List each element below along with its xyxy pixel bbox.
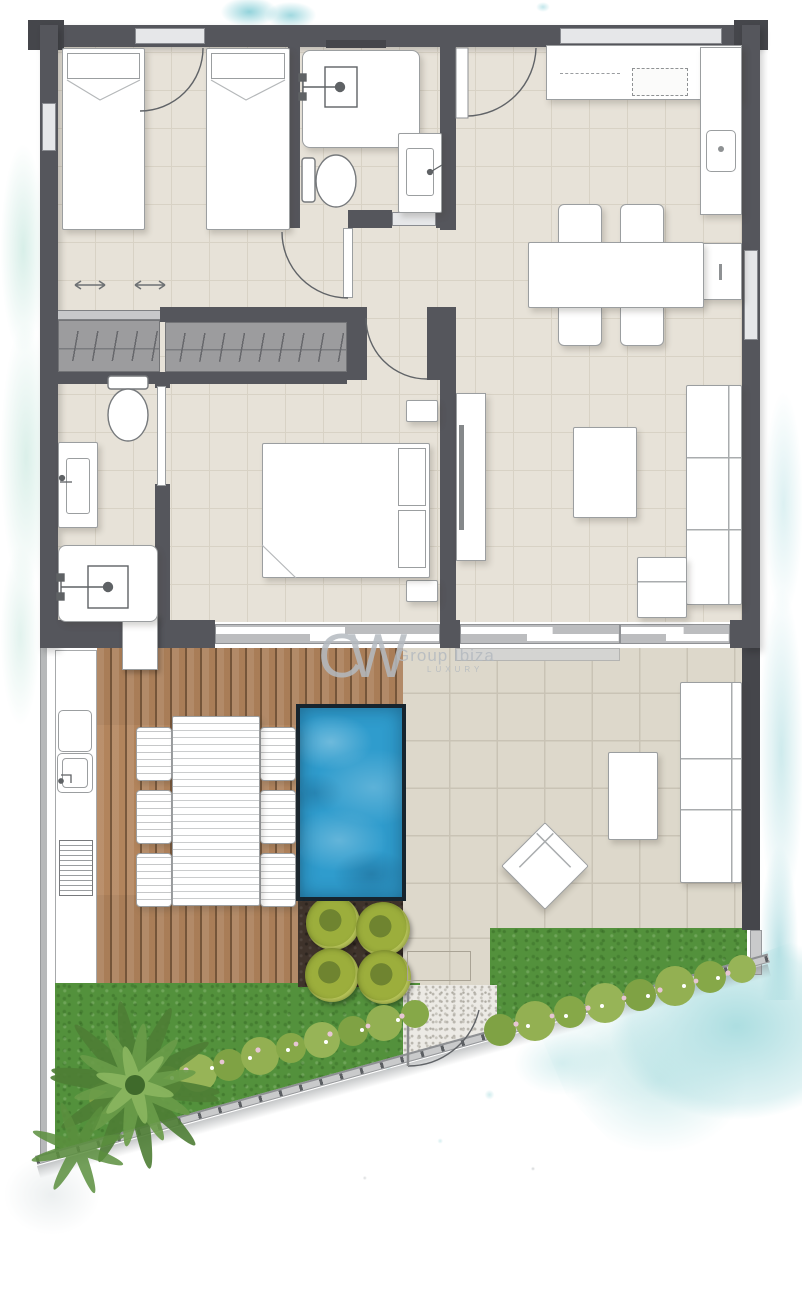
palm-plant bbox=[30, 1000, 220, 1195]
hedge-right bbox=[484, 955, 756, 1046]
watermark-brand: Group Ibiza bbox=[396, 646, 495, 666]
toilet-bathroom1 bbox=[302, 155, 356, 207]
door-arc-bathroom1 bbox=[282, 232, 348, 298]
faucet-bathroom1 bbox=[428, 165, 443, 175]
door-arc-entry bbox=[468, 48, 536, 116]
faucet-bathroom2 bbox=[60, 476, 73, 483]
shower-symbol-bathroom2 bbox=[57, 566, 128, 608]
bed-fold-lines bbox=[67, 80, 296, 578]
watermark-tagline: LUXURY bbox=[427, 665, 483, 674]
door-leaf-entry bbox=[456, 48, 468, 118]
toilet-bathroom2 bbox=[108, 376, 148, 441]
faucet-outdoor-sink bbox=[59, 775, 71, 783]
floor-plan-scene: CW Group Ibiza LUXURY bbox=[0, 0, 802, 1309]
watermark-logo: CW bbox=[318, 626, 393, 688]
sliding-door-arrows bbox=[75, 281, 165, 289]
shower-symbol-bathroom1 bbox=[299, 67, 357, 107]
door-arc-master bbox=[366, 318, 427, 379]
door-arc-bedroom1 bbox=[140, 48, 203, 111]
